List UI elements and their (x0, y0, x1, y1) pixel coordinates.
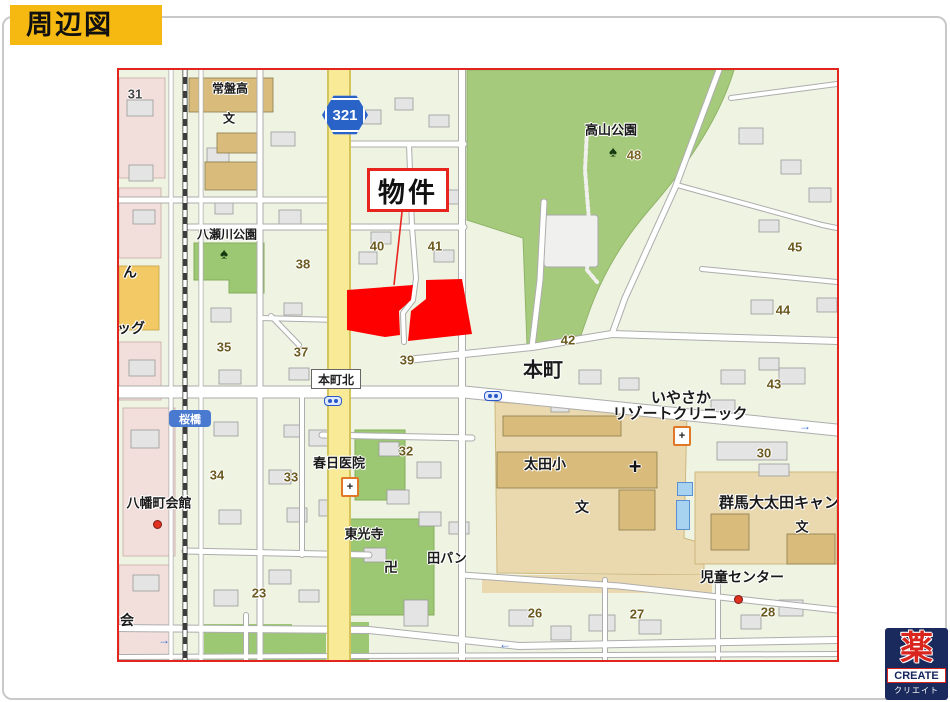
label-iyasaka-line2: リゾートクリニック (612, 403, 747, 424)
label-ota-elementary: 太田小 (524, 454, 566, 474)
label-gunma-univ-campus: 群馬大太田キャン (719, 492, 839, 513)
traffic-signal-icon (324, 396, 342, 406)
block-number-23: 23 (252, 586, 266, 601)
one-way-arrow-icon: ← (499, 637, 511, 651)
block-number-42: 42 (561, 333, 575, 348)
one-way-arrow-icon: → (799, 419, 811, 433)
logo-kanji: 薬 (900, 628, 933, 668)
block-number-26: 26 (528, 606, 542, 621)
label-jido-center: 児童センター (700, 567, 784, 587)
hospital-icon-iyasaka: + (673, 426, 691, 446)
page-title: 周辺図 (10, 5, 162, 45)
block-number-30: 30 (757, 446, 771, 461)
park-tree-icon: ♠ (220, 246, 228, 263)
label-honcho: 本町 (523, 354, 563, 383)
block-number-27: 27 (630, 607, 644, 622)
park-tree-icon: ♠ (609, 144, 617, 161)
block-number-41: 41 (428, 239, 442, 254)
school-mark-ota-elem: 文 (575, 497, 589, 517)
label-tokiwa-high: 常盤高 (212, 80, 248, 97)
property-leader-line (394, 212, 402, 285)
school-mark-tokiwa: 文 (223, 110, 235, 127)
label-kasuga-clinic: 春日医院 (313, 453, 365, 472)
block-number-34: 34 (210, 468, 224, 483)
block-number-44: 44 (776, 303, 790, 318)
block-number-35: 35 (217, 340, 231, 355)
block-number-37: 37 (294, 345, 308, 360)
logo-name: CREATE (887, 668, 946, 683)
block-number-38: 38 (296, 257, 310, 272)
elevation-48: 48 (627, 148, 641, 163)
traffic-signal-icon (484, 391, 502, 401)
block-number-40: 40 (370, 239, 384, 254)
label-edge-partial-kai: 会 (120, 610, 134, 630)
label-edge-partial-n: ん (123, 262, 137, 282)
block-number-28: 28 (761, 605, 775, 620)
hospital-icon-kasuga: + (341, 477, 359, 497)
create-pharmacy-logo: 薬 CREATE クリエイト (885, 628, 948, 700)
block-number-31: 31 (128, 87, 142, 102)
school-mark-gunma-univ: 文 (795, 517, 808, 536)
page: 周辺図 (0, 0, 950, 702)
cross-icon: + (629, 454, 642, 480)
label-takayama-park: 高山公園 (585, 120, 637, 139)
block-number-45: 45 (788, 240, 802, 255)
intersection-badge-honcho-kita: 本町北 (311, 369, 361, 389)
one-way-arrow-icon: → (158, 633, 170, 647)
block-number-32: 32 (399, 444, 413, 459)
property-label-box: 物件 (367, 168, 449, 212)
pool-icon (677, 482, 693, 496)
temple-manji-mark: 卍 (384, 557, 398, 577)
block-number-43: 43 (767, 377, 781, 392)
label-bakery: 田パン (427, 548, 467, 567)
public-hall-dot-icon (153, 520, 162, 529)
block-number-33: 33 (284, 470, 298, 485)
bridge-badge-sakurabashi: 桜橋 (169, 410, 211, 427)
label-tokoji: 東光寺 (344, 524, 383, 543)
label-edge-partial-ggu: ッグ (117, 318, 145, 338)
block-number-39: 39 (400, 353, 414, 368)
label-yasegawa-park: 八瀬川公園 (197, 226, 257, 243)
logo-katakana: クリエイト (894, 685, 939, 696)
pool-icon (676, 500, 690, 530)
label-hachimancho-hall: 八幡町会館 (126, 493, 191, 512)
jido-center-dot-icon (734, 595, 743, 604)
area-map: 321 物件 本町北 桜橋 常盤高 高山公園 八瀬川公園 本町 春日医院 八幡町… (117, 68, 839, 662)
